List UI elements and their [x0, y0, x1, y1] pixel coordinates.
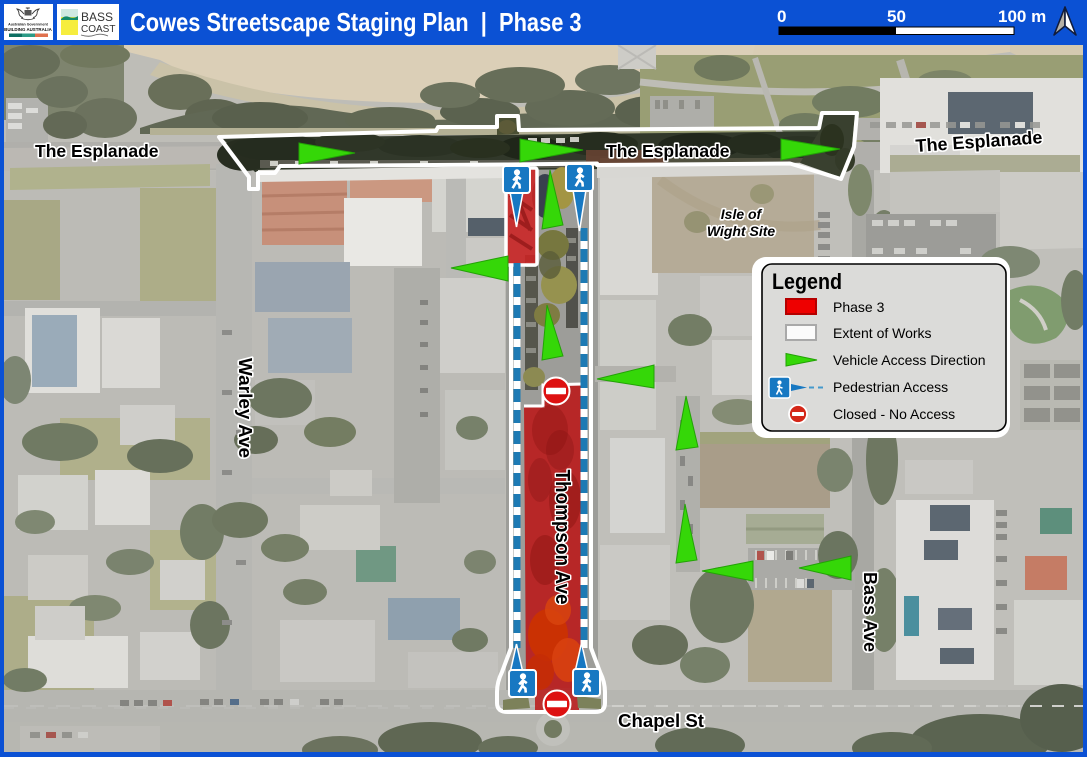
svg-text:50: 50 — [887, 7, 906, 26]
svg-text:Bass Ave: Bass Ave — [860, 572, 880, 652]
svg-text:100 m: 100 m — [998, 7, 1046, 26]
svg-text:Thompson Ave: Thompson Ave — [551, 470, 573, 605]
svg-text:Legend: Legend — [772, 269, 842, 294]
svg-text:Wight Site: Wight Site — [707, 223, 776, 239]
svg-text:BASS: BASS — [81, 10, 113, 24]
svg-text:Warley Ave: Warley Ave — [235, 358, 255, 458]
svg-text:The Esplanade: The Esplanade — [35, 141, 159, 161]
svg-text:COAST: COAST — [81, 24, 115, 35]
svg-text:0: 0 — [777, 7, 786, 26]
svg-text:Isle of: Isle of — [721, 206, 763, 222]
svg-text:Australian Government: Australian Government — [8, 23, 49, 27]
svg-text:Closed - No Access: Closed - No Access — [833, 406, 955, 422]
svg-text:BUILDING AUSTRALIA: BUILDING AUSTRALIA — [4, 27, 52, 32]
svg-text:Phase 3: Phase 3 — [833, 299, 885, 315]
svg-text:Pedestrian Access: Pedestrian Access — [833, 379, 948, 395]
svg-text:Vehicle Access Direction: Vehicle Access Direction — [833, 352, 986, 368]
svg-text:The Esplanade: The Esplanade — [606, 141, 730, 161]
svg-text:Extent of Works: Extent of Works — [833, 325, 932, 341]
svg-text:Chapel St: Chapel St — [618, 711, 704, 731]
